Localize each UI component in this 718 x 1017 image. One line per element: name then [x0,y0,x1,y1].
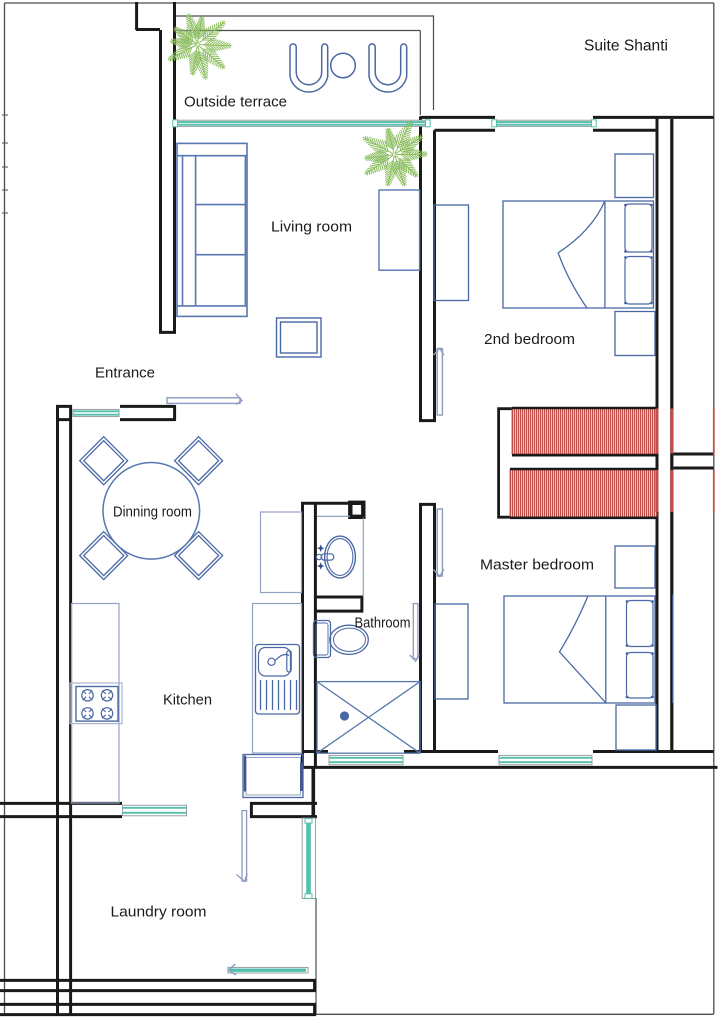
svg-text:Kitchen: Kitchen [163,693,212,709]
svg-text:Laundry room: Laundry room [111,905,207,921]
svg-text:2nd bedroom: 2nd bedroom [484,332,575,348]
svg-text:Outside terrace: Outside terrace [184,95,287,111]
svg-text:Master bedroom: Master bedroom [480,558,594,574]
svg-text:Suite Shanti: Suite Shanti [584,38,668,55]
svg-text:Entrance: Entrance [95,366,155,382]
svg-text:Dinning room: Dinning room [113,505,192,521]
svg-text:Living room: Living room [271,220,352,236]
svg-text:Bathroom: Bathroom [355,616,411,632]
